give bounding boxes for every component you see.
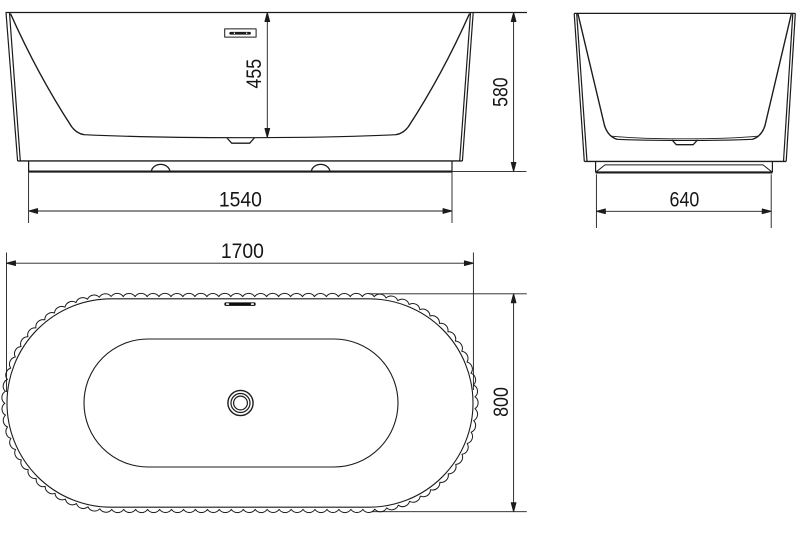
svg-text:1700: 1700: [221, 240, 264, 263]
svg-text:580: 580: [490, 77, 513, 107]
svg-text:455: 455: [243, 59, 266, 89]
svg-text:800: 800: [490, 387, 513, 417]
svg-text:1540: 1540: [219, 188, 262, 211]
svg-text:640: 640: [670, 188, 700, 211]
